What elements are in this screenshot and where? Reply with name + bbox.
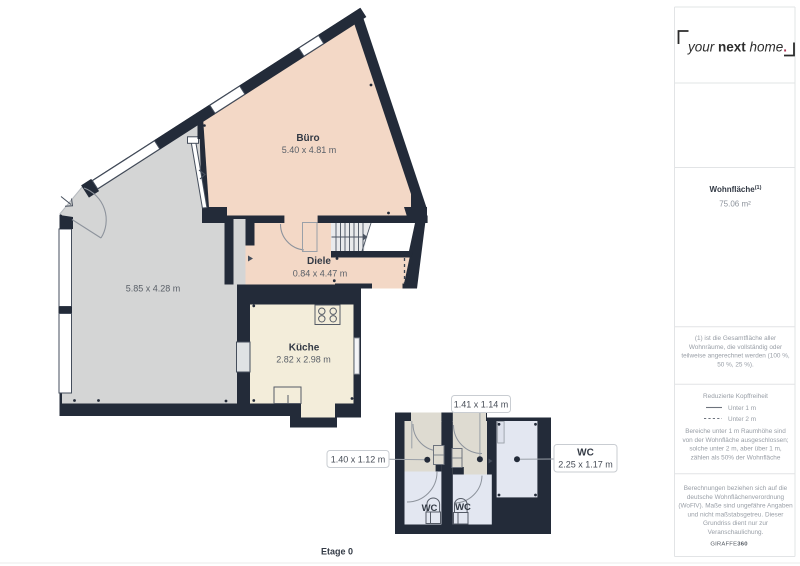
svg-text:GIRAFFE360: GIRAFFE360 bbox=[710, 542, 748, 548]
svg-text:(WoFlV). Maße sind ungefähre A: (WoFlV). Maße sind ungefähre Angaben bbox=[678, 503, 793, 510]
svg-text:2.82 x 2.98 m: 2.82 x 2.98 m bbox=[276, 355, 331, 365]
svg-text:75.06 m²: 75.06 m² bbox=[719, 200, 751, 209]
svg-text:WC: WC bbox=[422, 503, 438, 514]
svg-text:0.84 x 4.47 m: 0.84 x 4.47 m bbox=[293, 269, 348, 279]
svg-text:50 %, 25 %).: 50 %, 25 %). bbox=[717, 361, 754, 368]
svg-text:1.41 x 1.14 m: 1.41 x 1.14 m bbox=[454, 399, 509, 409]
svg-text:solche unter 2 m, aber über 1: solche unter 2 m, aber über 1 m, bbox=[689, 446, 782, 453]
svg-text:5.40 x 4.81 m: 5.40 x 4.81 m bbox=[282, 145, 337, 155]
svg-text:1.40 x 1.12 m: 1.40 x 1.12 m bbox=[331, 454, 386, 464]
svg-text:und nicht maßstabsgetreu. Dies: und nicht maßstabsgetreu. Dieser bbox=[688, 511, 785, 518]
svg-text:Veranschaulichung.: Veranschaulichung. bbox=[708, 529, 764, 536]
svg-text:Grundriss dient nur zur: Grundriss dient nur zur bbox=[703, 520, 769, 527]
svg-text:(1) ist die Gesamtfläche aller: (1) ist die Gesamtfläche aller bbox=[695, 335, 777, 342]
svg-text:Bereiche unter 1 m Raumhöhe si: Bereiche unter 1 m Raumhöhe sind bbox=[685, 428, 786, 435]
svg-text:Büro: Büro bbox=[296, 133, 319, 144]
svg-text:Wohnfläche(1): Wohnfläche(1) bbox=[710, 185, 762, 194]
svg-text:teilweise angerechnet werden (: teilweise angerechnet werden (100 %, bbox=[681, 353, 790, 360]
svg-text:WC: WC bbox=[577, 448, 594, 459]
svg-text:Etage 0: Etage 0 bbox=[321, 547, 353, 557]
svg-text:Küche: Küche bbox=[289, 343, 320, 354]
svg-text:2.25 x 1.17 m: 2.25 x 1.17 m bbox=[558, 460, 613, 470]
svg-text:WC: WC bbox=[455, 502, 471, 513]
svg-text:zählen als 50% der Wohnfläche: zählen als 50% der Wohnfläche bbox=[691, 454, 781, 461]
svg-text:Reduzierte Kopffreiheit: Reduzierte Kopffreiheit bbox=[703, 393, 768, 400]
svg-text:your next home.: your next home. bbox=[687, 40, 787, 55]
svg-text:von der Wohnfläche ausgeschlos: von der Wohnfläche ausgeschlossen; bbox=[682, 437, 788, 444]
svg-text:deutsche Wohnflächenverordnung: deutsche Wohnflächenverordnung bbox=[687, 494, 785, 501]
svg-text:Berechnungen beziehen sich auf: Berechnungen beziehen sich auf die bbox=[684, 485, 788, 492]
svg-text:Diele: Diele bbox=[307, 256, 331, 267]
svg-text:Unter 2 m: Unter 2 m bbox=[728, 416, 756, 423]
svg-text:Wohnräume, die vollständig ode: Wohnräume, die vollständig oder bbox=[689, 344, 783, 351]
svg-text:Unter 1 m: Unter 1 m bbox=[728, 405, 756, 412]
svg-text:5.85 x 4.28 m: 5.85 x 4.28 m bbox=[126, 284, 181, 294]
